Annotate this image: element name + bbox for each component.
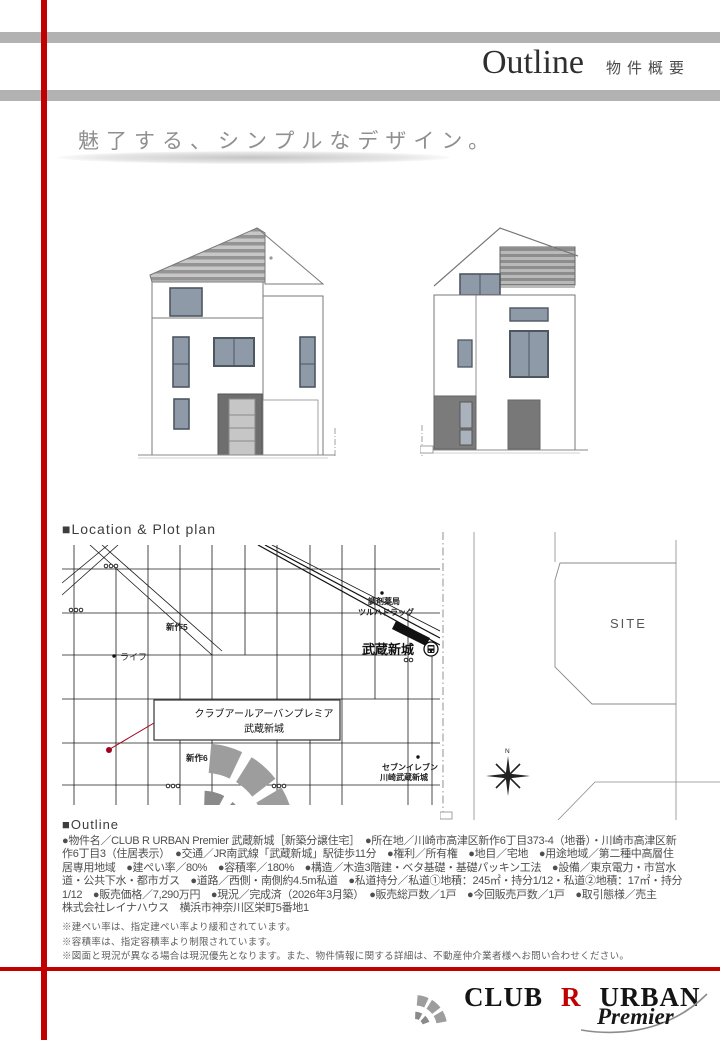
footnote-line: ※図面と現況が異なる場合は現況優先となります。また、物件情報に関する詳細は、不動… bbox=[62, 950, 629, 965]
map-label-pharmacy: 調剤薬局 bbox=[368, 596, 400, 606]
page-subtitle: 物件概要 bbox=[606, 57, 690, 78]
page-title: Outline bbox=[482, 44, 584, 82]
front-elevation-drawing bbox=[130, 200, 380, 480]
map-label-station: 武蔵新城 bbox=[362, 642, 414, 657]
site-label: SITE bbox=[610, 616, 647, 631]
outline-line: 株式会社レイナハウス 横浜市神奈川区栄町5番地1 bbox=[62, 902, 674, 915]
map-label-tsuruha: ツルハドラッグ bbox=[358, 607, 414, 617]
property-callout-line1: クラブアールアーバンプレミア bbox=[195, 707, 334, 720]
property-flyer-page: { "header": { "title_en": "Outline", "ti… bbox=[0, 0, 720, 1040]
location-map: 新作5 ライフ 調剤薬局 ツルハドラッグ 武蔵新城 新作6 セブンイレブン 川崎… bbox=[62, 545, 440, 805]
footnotes: ※建ぺい率は、指定建ぺい率より緩和されています。 ※容積率は、指定容積率より制限… bbox=[62, 921, 629, 965]
map-label-seven-eleven: セブンイレブン bbox=[382, 762, 438, 772]
catch-copy: 魅了する、シンプルなデザイン。 bbox=[78, 125, 496, 155]
plot-plan: SITE N bbox=[440, 532, 720, 820]
outline-section-heading: ■Outline bbox=[62, 817, 119, 832]
page-header: Outline 物件概要 bbox=[482, 44, 690, 82]
outline-line: ●物件名／CLUB R URBAN Premier 武蔵新城［新築分譲住宅］ ●… bbox=[62, 835, 674, 848]
outline-line: 1/12 ●販売価格／7,290万円 ●現況／完成済（2026年3月築） ●販売… bbox=[62, 889, 674, 902]
property-callout-line2: 武蔵新城 bbox=[244, 722, 284, 735]
location-section-heading: ■Location & Plot plan bbox=[62, 521, 216, 537]
footnote-line: ※容積率は、指定容積率より制限されています。 bbox=[62, 936, 629, 951]
side-elevation-drawing bbox=[420, 200, 640, 480]
brand-club: CLUB bbox=[464, 982, 543, 1012]
property-location-dot bbox=[106, 747, 112, 753]
footer-red-line bbox=[0, 967, 720, 971]
station-icon bbox=[424, 642, 438, 656]
property-outline-text: ●物件名／CLUB R URBAN Premier 武蔵新城［新築分譲住宅］ ●… bbox=[62, 835, 674, 915]
compass-rose: N bbox=[486, 748, 530, 796]
map-label-seven-eleven-2: 川崎武蔵新城 bbox=[379, 772, 428, 782]
outline-line: 道・公共下水・都市ガス ●道路／西側・南側約4.5m私道 ●私道持分／私道①地積… bbox=[62, 875, 674, 888]
brand-premier: Premier bbox=[597, 1004, 674, 1030]
map-label-life: ライフ bbox=[120, 652, 147, 662]
compass-north-label: N bbox=[505, 748, 510, 755]
outline-line: 作6丁目3（住居表示） ●交通／JR南武線「武蔵新城」駅徒歩11分 ●権利／所有… bbox=[62, 848, 674, 861]
map-label-shinsaku6: 新作6 bbox=[186, 753, 208, 763]
outline-line: 居専用地域 ●建ぺい率／80% ●容積率／180% ●構造／木造3階建・ベタ基礎… bbox=[62, 862, 674, 875]
map-label-shinsaku5: 新作5 bbox=[166, 622, 188, 632]
top-gray-bar-1 bbox=[0, 32, 720, 43]
top-gray-bar-2 bbox=[0, 90, 720, 101]
left-red-accent-bar bbox=[41, 0, 47, 1040]
footer-fan-logo-icon bbox=[410, 981, 458, 1029]
footnote-line: ※建ぺい率は、指定建ぺい率より緩和されています。 bbox=[62, 921, 629, 936]
